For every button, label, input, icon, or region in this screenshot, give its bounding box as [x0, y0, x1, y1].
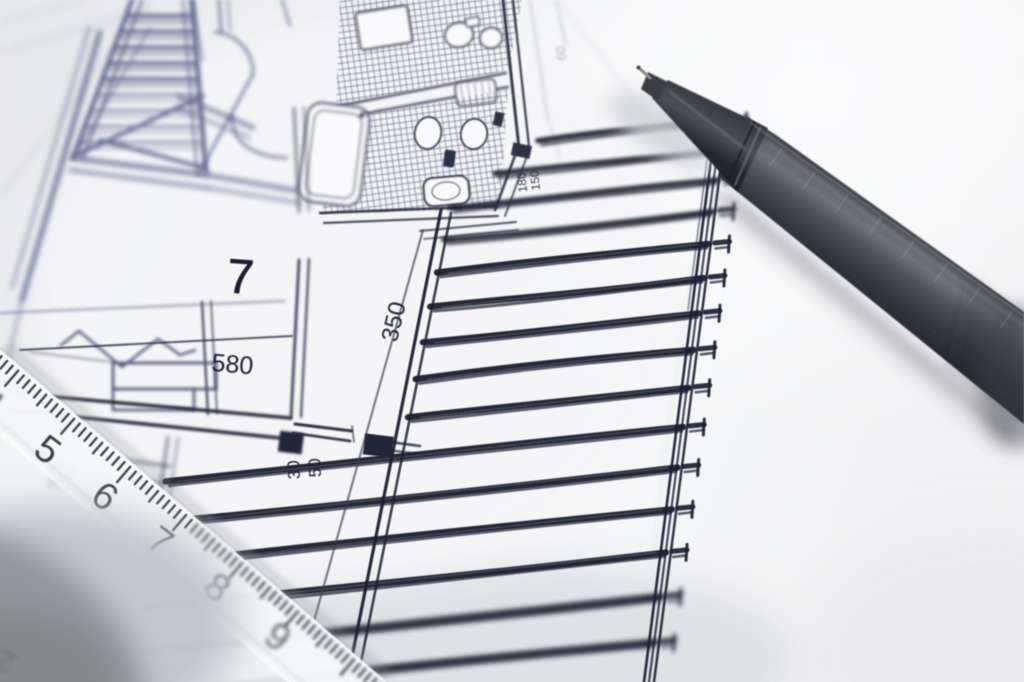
- svg-text:60: 60: [553, 45, 569, 61]
- svg-text:580: 580: [210, 349, 254, 381]
- svg-text:7: 7: [225, 250, 255, 305]
